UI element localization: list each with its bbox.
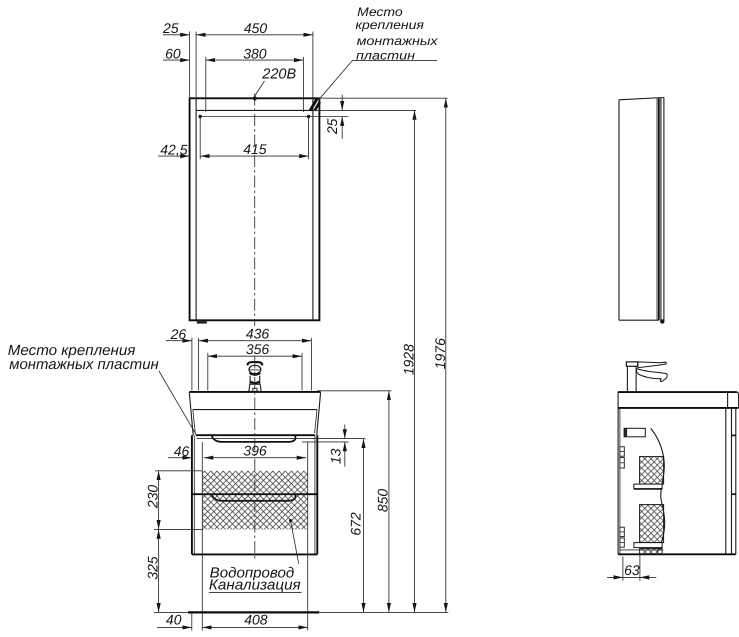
svg-text:1928: 1928 — [401, 344, 417, 375]
svg-text:1976: 1976 — [432, 338, 448, 369]
svg-text:26: 26 — [170, 326, 187, 342]
svg-text:396: 396 — [243, 442, 267, 458]
svg-text:монтажных: монтажных — [357, 34, 439, 48]
svg-text:25: 25 — [162, 20, 179, 36]
svg-text:крепления: крепления — [355, 18, 424, 32]
svg-text:450: 450 — [244, 20, 268, 36]
svg-text:13: 13 — [327, 448, 343, 464]
svg-text:672: 672 — [347, 512, 363, 536]
svg-text:46: 46 — [174, 443, 190, 459]
svg-text:436: 436 — [246, 326, 270, 342]
svg-text:325: 325 — [144, 556, 160, 580]
svg-text:Канализация: Канализация — [209, 578, 301, 594]
svg-text:40: 40 — [166, 612, 182, 628]
svg-text:220В: 220В — [261, 67, 296, 83]
svg-text:356: 356 — [246, 341, 270, 357]
svg-text:415: 415 — [243, 141, 267, 157]
svg-text:63: 63 — [624, 562, 640, 578]
svg-text:230: 230 — [144, 485, 160, 510]
svg-text:25: 25 — [324, 118, 340, 135]
svg-text:850: 850 — [375, 489, 391, 513]
svg-text:42,5: 42,5 — [160, 141, 187, 157]
svg-text:монтажных пластин: монтажных пластин — [9, 357, 158, 373]
svg-text:60: 60 — [165, 45, 181, 61]
svg-text:380: 380 — [243, 45, 267, 61]
svg-text:408: 408 — [244, 612, 268, 628]
svg-text:Место: Место — [357, 5, 403, 19]
